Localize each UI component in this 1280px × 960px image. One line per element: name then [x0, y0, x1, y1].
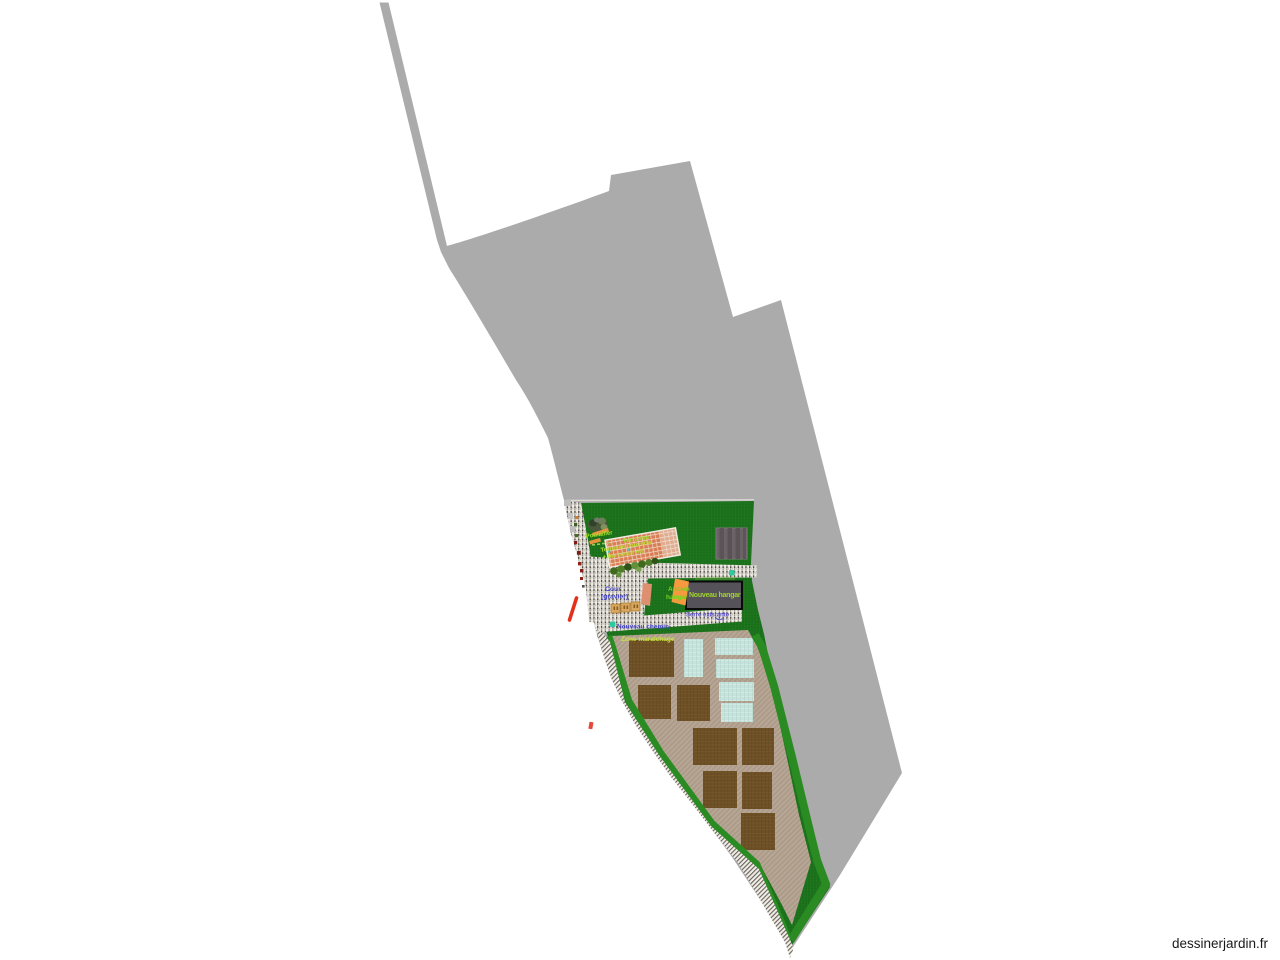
svg-text:dessinerjardin.fr: dessinerjardin.fr: [1172, 936, 1269, 951]
svg-text:(gravier): (gravier): [601, 594, 628, 601]
svg-text:hangar: hangar: [666, 594, 688, 601]
svg-text:Serre existante: Serre existante: [686, 613, 730, 619]
svg-text:Nouveau hangar: Nouveau hangar: [689, 592, 741, 599]
svg-text:Cour: Cour: [605, 586, 621, 593]
svg-text:Ancien: Ancien: [668, 586, 690, 593]
svg-text:Zone maraîchage: Zone maraîchage: [621, 636, 675, 643]
svg-text:Nouveau chemin: Nouveau chemin: [617, 624, 669, 631]
